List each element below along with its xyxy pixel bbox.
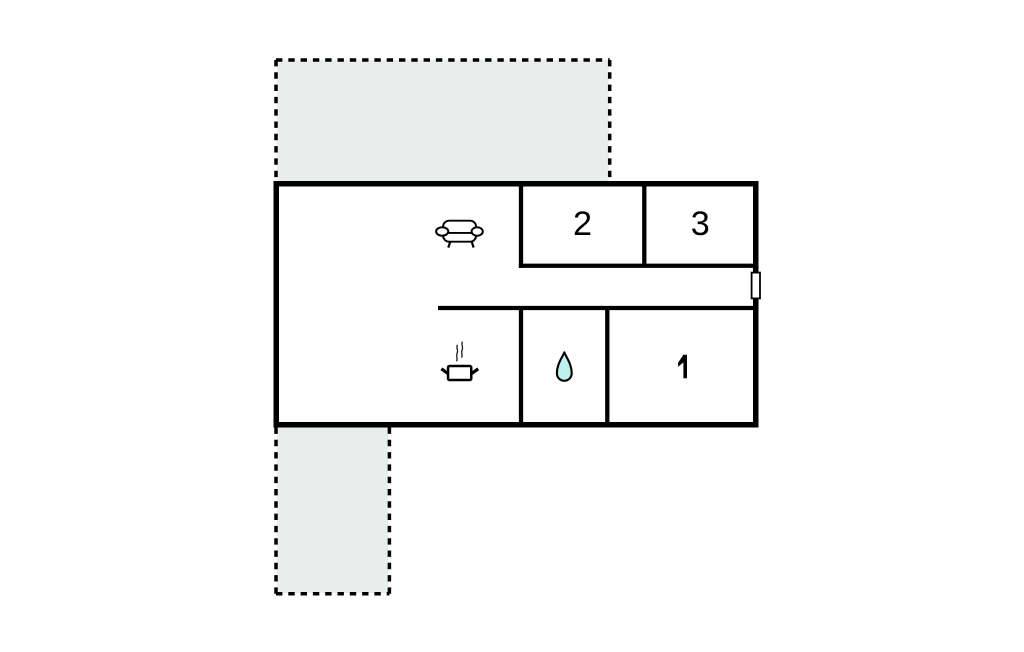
svg-text:2: 2 xyxy=(573,205,592,243)
svg-text:3: 3 xyxy=(691,205,710,243)
